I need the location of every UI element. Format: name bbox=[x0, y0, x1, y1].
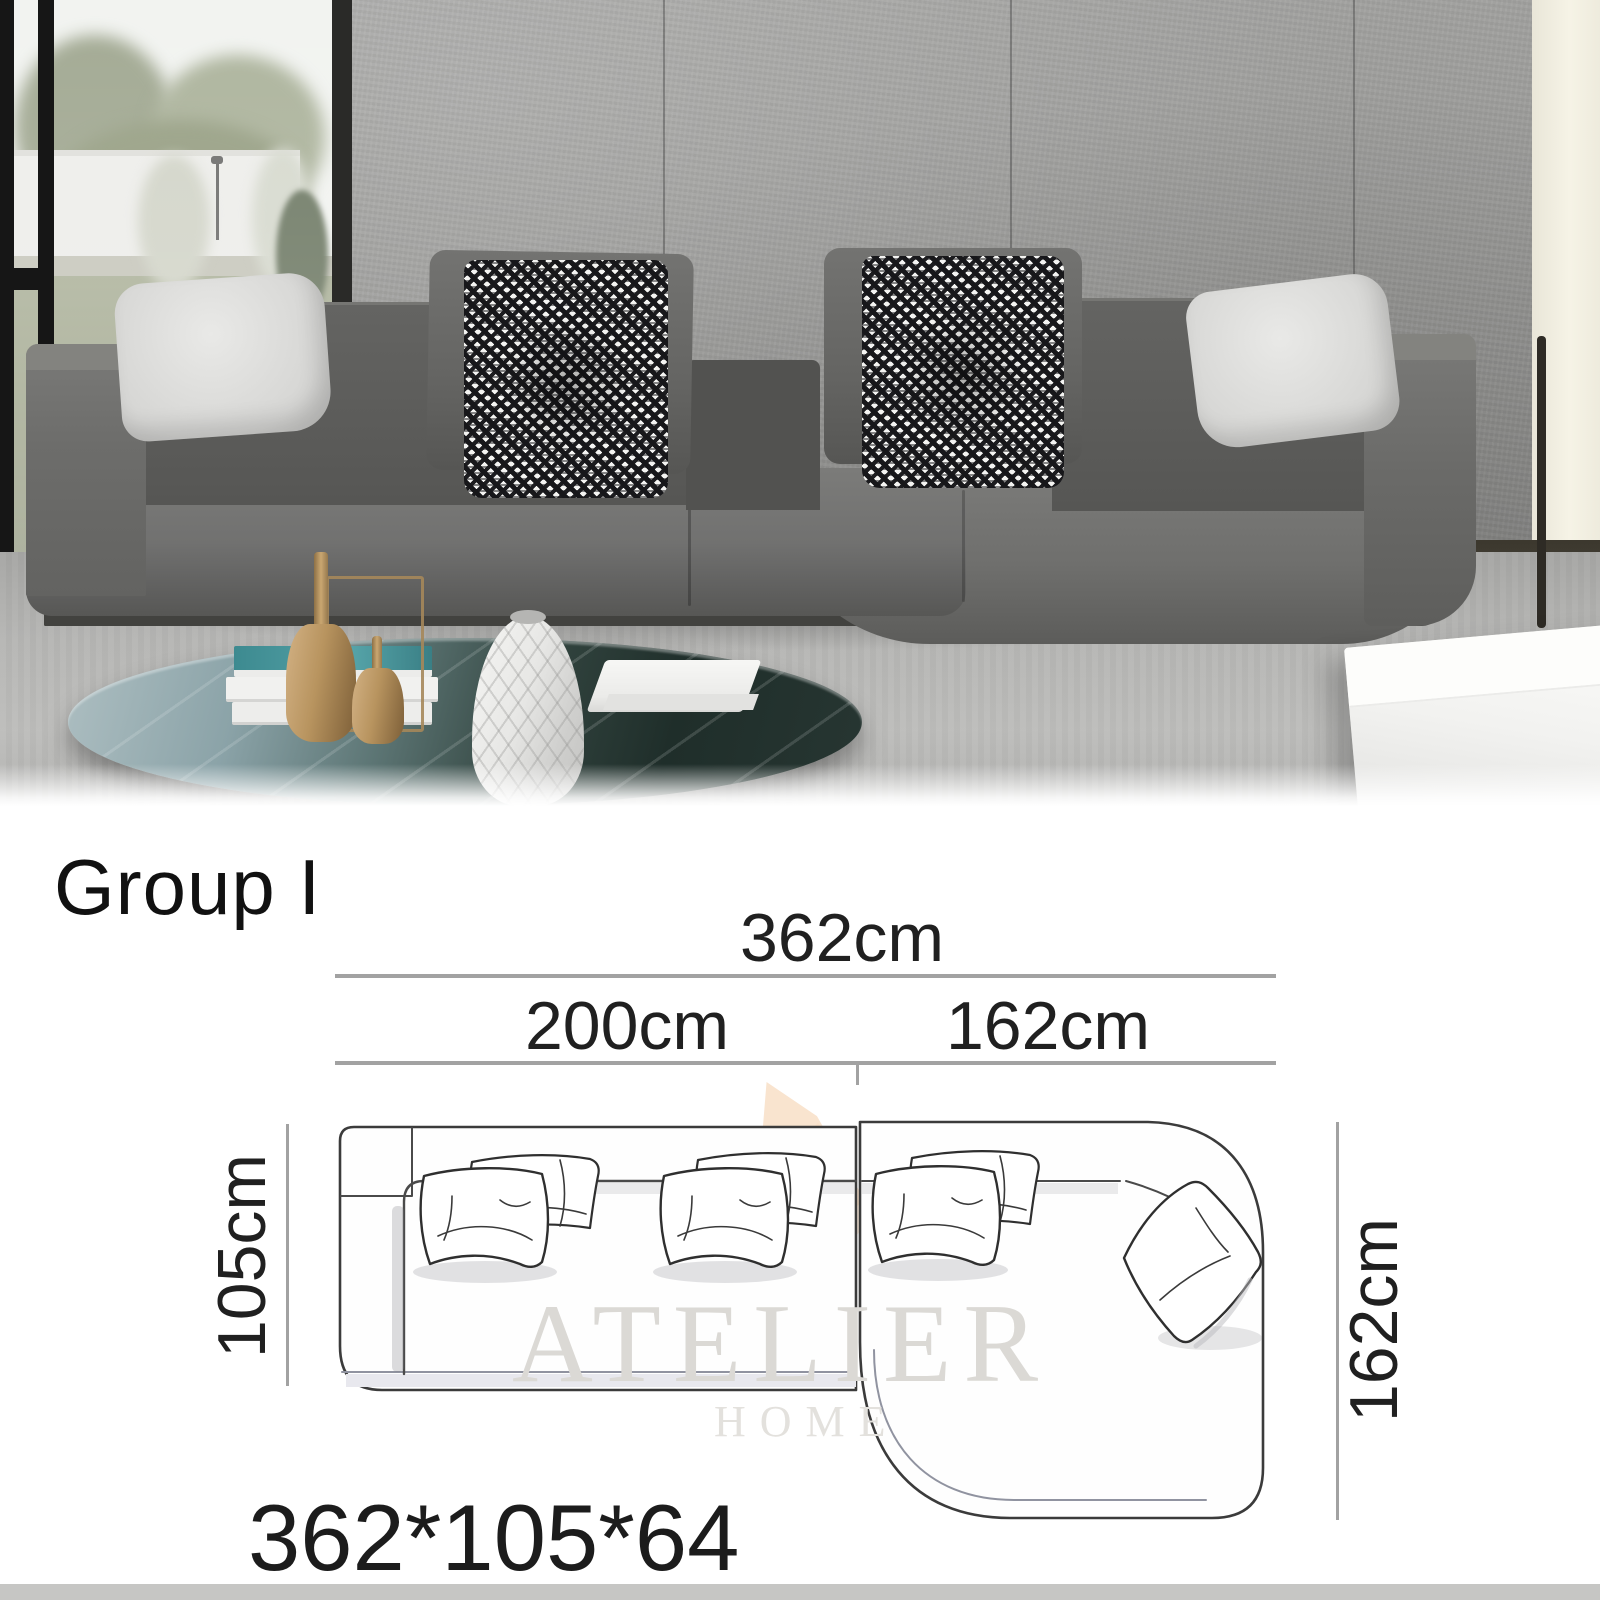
dim-left-width: 200cm bbox=[525, 987, 729, 1065]
dim-line-total bbox=[335, 974, 1276, 978]
white-pillow-right bbox=[1183, 270, 1403, 451]
dim-total-width: 362cm bbox=[740, 899, 944, 977]
sofa-room-photo bbox=[0, 0, 1600, 806]
dim-section-tick bbox=[856, 1061, 859, 1085]
gold-bottle-large bbox=[286, 624, 356, 742]
group-title: Group I bbox=[54, 842, 321, 933]
sofa-backrest-middle bbox=[686, 360, 820, 510]
houndstooth-pillow-left bbox=[464, 260, 668, 498]
watermark-text: ATELIER bbox=[512, 1280, 1050, 1409]
overall-size-text: 362*105*64 bbox=[248, 1484, 739, 1592]
product-listing-image: Group I 362cm 200cm 162cm 105cm 162cm bbox=[0, 0, 1600, 1600]
gold-bottle-neck bbox=[314, 552, 328, 632]
dim-line-depth bbox=[286, 1124, 289, 1386]
dimension-board: Group I 362cm 200cm 162cm 105cm 162cm bbox=[0, 806, 1600, 1600]
floor-lamp-pole bbox=[1537, 336, 1546, 628]
pillow-dimple bbox=[862, 256, 1064, 488]
plan-corner-pillow bbox=[1124, 1182, 1261, 1342]
cushion-seam bbox=[962, 490, 965, 602]
houndstooth-pillow-right bbox=[862, 256, 1064, 488]
dim-left-depth: 105cm bbox=[203, 1154, 281, 1358]
vase-mouth bbox=[510, 610, 546, 624]
dim-chaise-depth: 162cm bbox=[1335, 1218, 1413, 1422]
gold-bottle-small bbox=[352, 668, 404, 744]
photo-bottom-fade bbox=[0, 764, 1600, 806]
white-pillow-left bbox=[113, 271, 334, 443]
pillow-dimple bbox=[464, 260, 668, 498]
white-magazine-pages bbox=[603, 694, 759, 710]
window-rail bbox=[0, 268, 54, 290]
dim-line-sections bbox=[335, 1061, 1276, 1065]
bottom-gray-strip bbox=[0, 1584, 1600, 1600]
watermark-text-sub: HOME bbox=[714, 1396, 900, 1447]
dim-right-width: 162cm bbox=[946, 987, 1150, 1065]
